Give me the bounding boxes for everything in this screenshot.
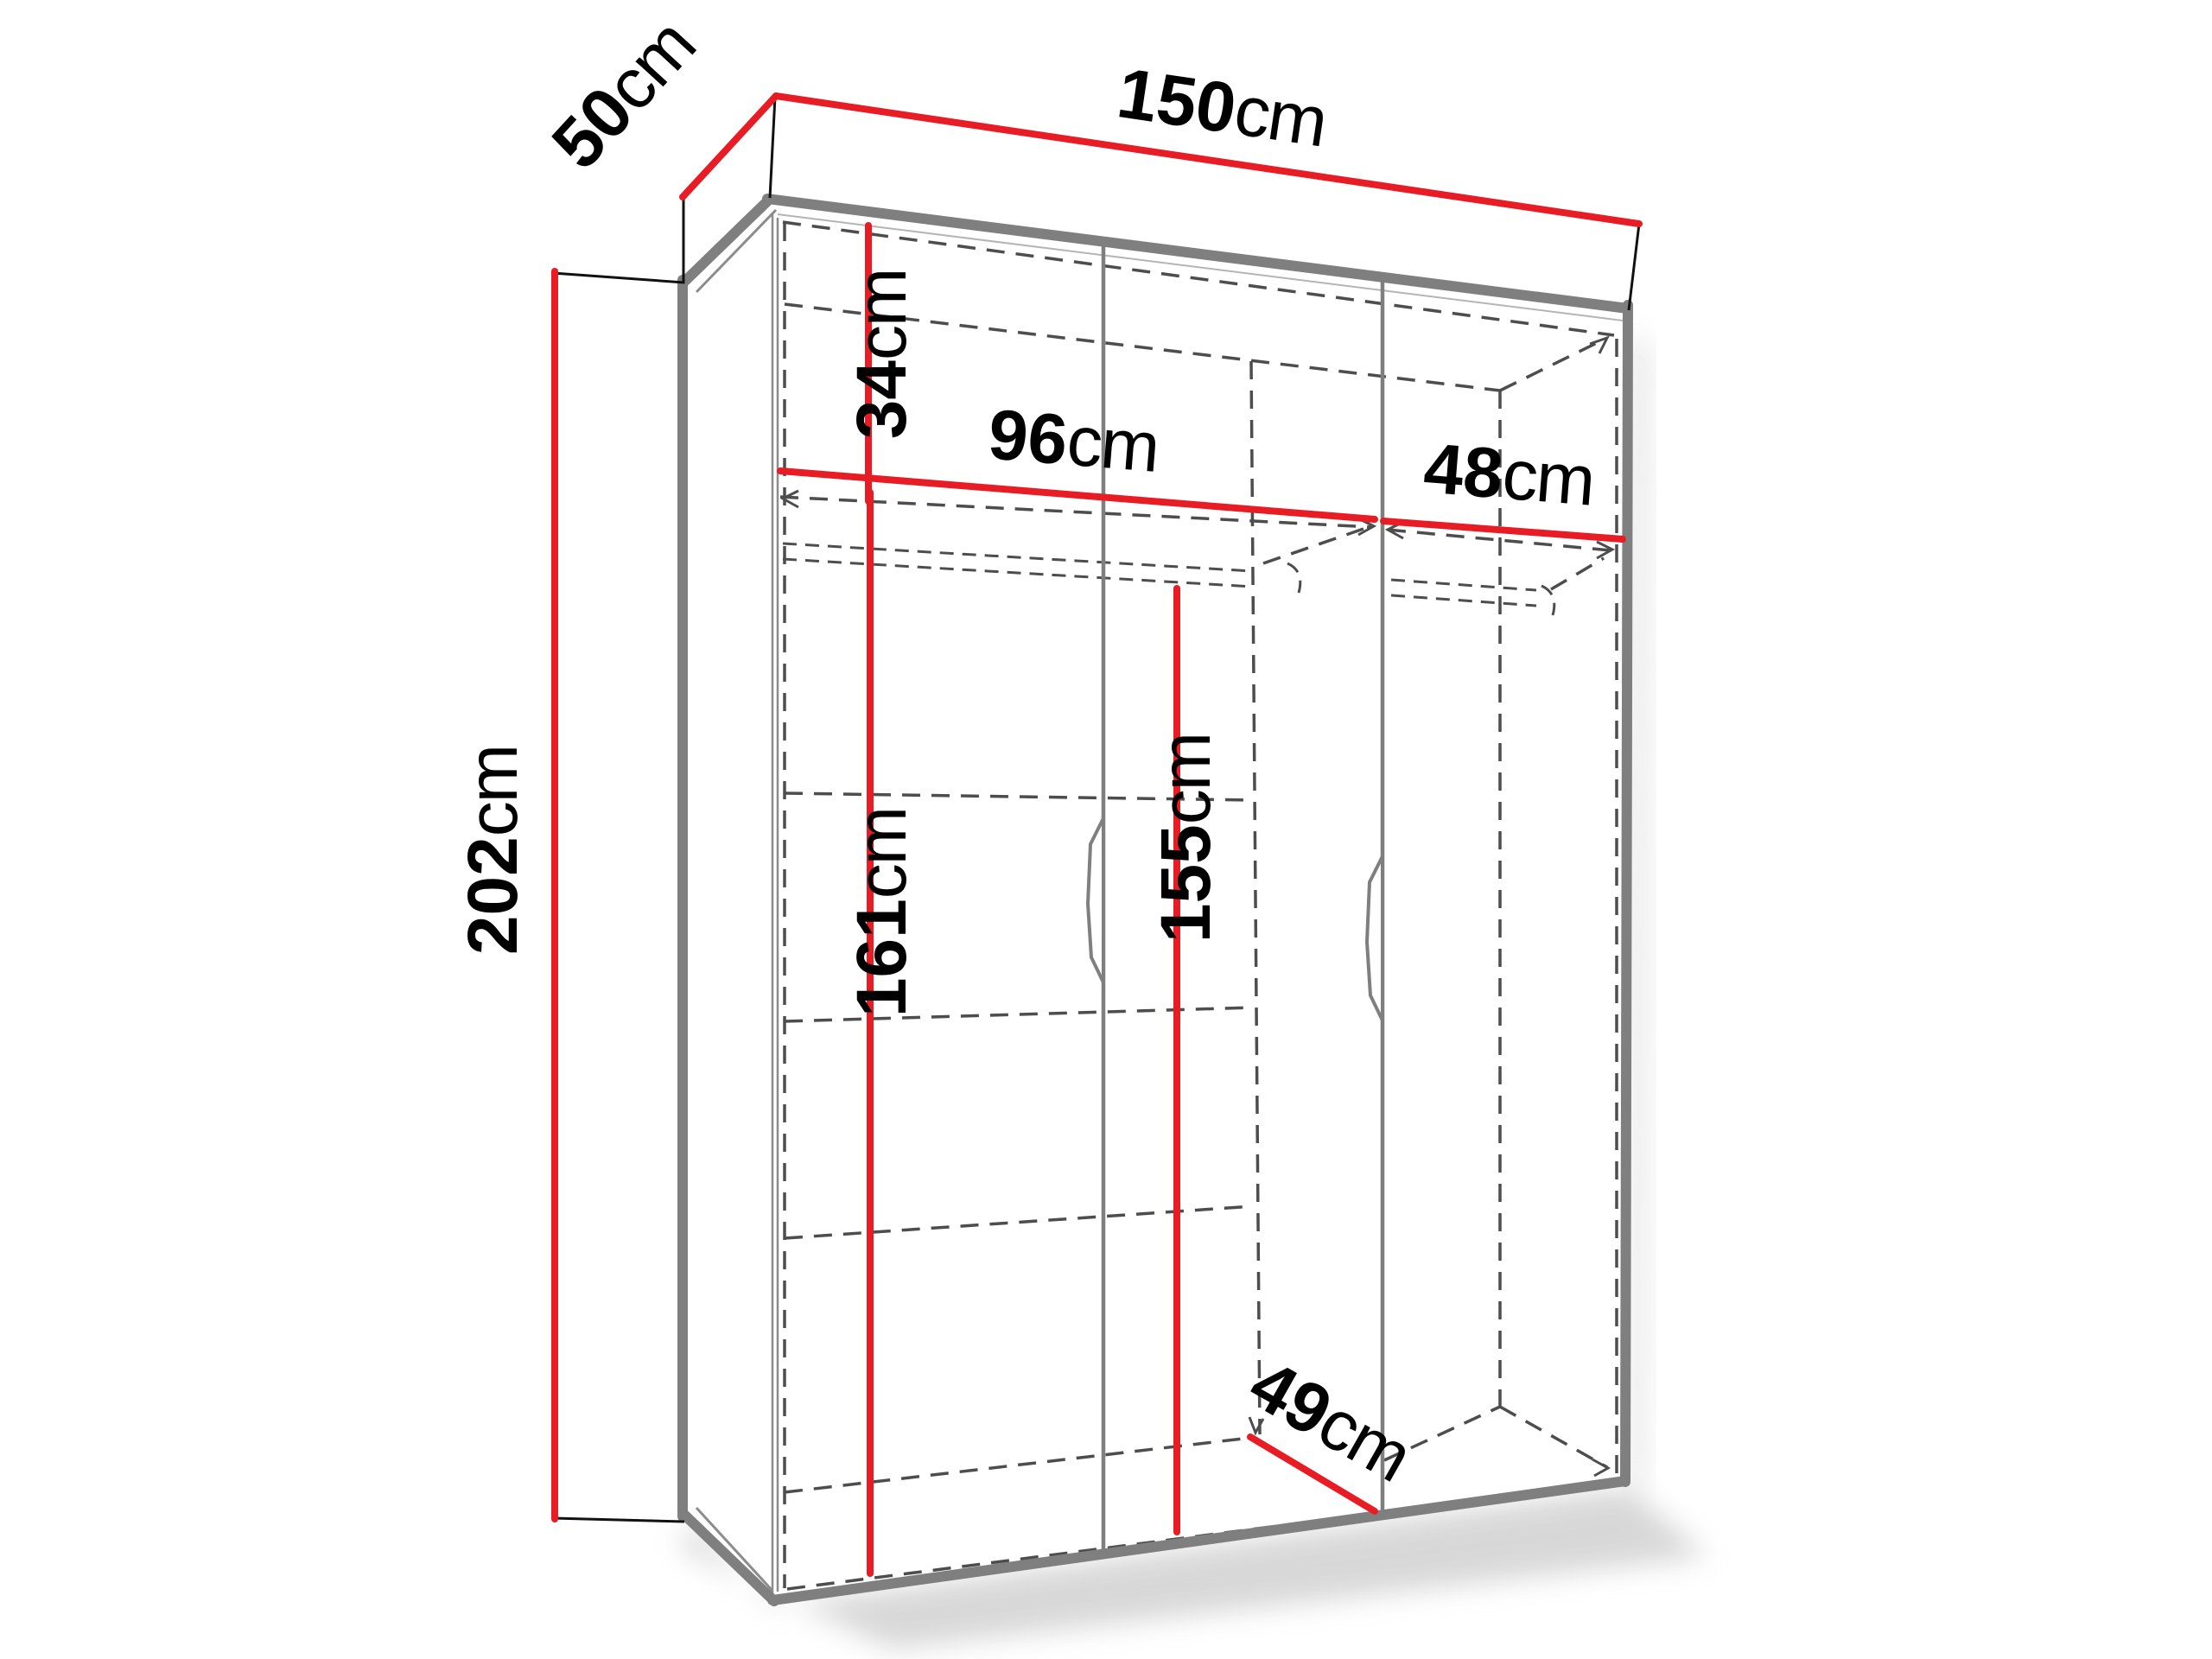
depth-dimension-line xyxy=(683,96,776,197)
depth-dimension-label: 50cm xyxy=(537,5,710,183)
hanging-height-label: 155cm xyxy=(1147,734,1225,943)
width-extension-right xyxy=(1629,224,1639,310)
diagram-canvas: 50cm 150cm 202cm 34cm 96cm 48cm 161cm 15… xyxy=(0,0,2212,1659)
door-handle-icon-left xyxy=(1088,818,1103,982)
width-dimension-label: 150cm xyxy=(1113,54,1332,162)
width-extension-left xyxy=(770,97,775,198)
height-extension-top xyxy=(553,273,684,283)
wardrobe-dimension-diagram: 50cm 150cm 202cm 34cm 96cm 48cm 161cm 15… xyxy=(0,0,2212,1659)
right-section-width-label: 48cm xyxy=(1421,429,1597,521)
left-interior-height-label: 161cm xyxy=(842,808,921,1017)
top-shelf-height-label: 34cm xyxy=(842,270,921,440)
height-extension-bottom xyxy=(553,1518,684,1522)
left-section-width-label: 96cm xyxy=(986,395,1161,486)
front-right-edge xyxy=(1625,305,1628,1482)
door-handle-icon-right xyxy=(1367,856,1382,1020)
height-dimension-label: 202cm xyxy=(454,746,532,955)
